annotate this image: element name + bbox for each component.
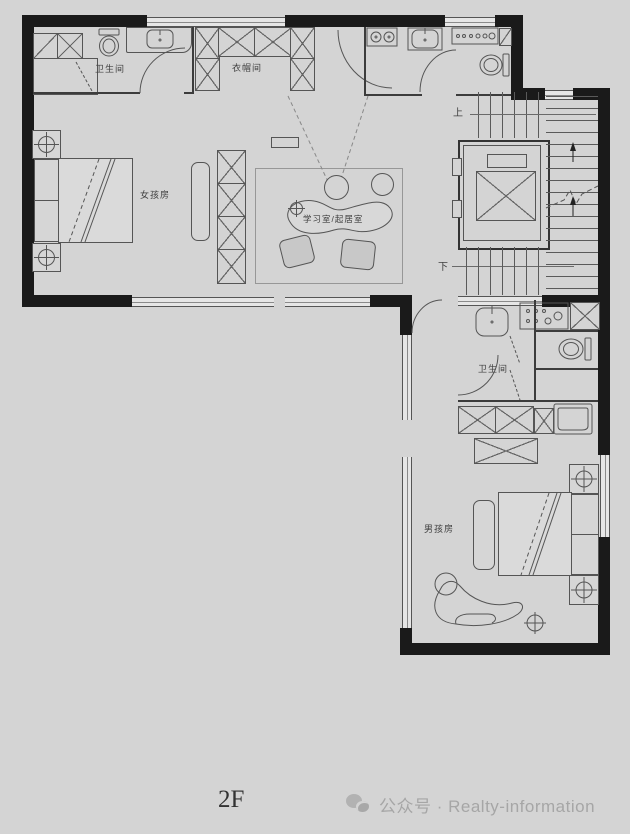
lamp-icon xyxy=(34,245,59,270)
bathroom2-divider-v xyxy=(534,300,536,400)
wall-top-a xyxy=(22,15,147,27)
lamp-icon xyxy=(34,132,59,157)
bookcase-cell xyxy=(217,216,246,251)
floor-plan: 卫生间 衣帽间 xyxy=(0,0,630,834)
wechat-icon xyxy=(346,794,372,816)
wardrobe-cabinet xyxy=(254,27,292,57)
window-bottom-left-1 xyxy=(132,297,274,307)
wardrobe-cabinet xyxy=(195,27,220,60)
wc-wall-bottom xyxy=(536,368,598,370)
credit-text: 公众号 · Realty-information xyxy=(379,792,595,817)
laundry-door-arc xyxy=(420,50,456,92)
headboard-panel xyxy=(34,159,60,201)
toilet-icon xyxy=(478,52,510,78)
bathroom1-cabinet xyxy=(33,33,58,59)
wall-wing-bottom xyxy=(400,643,610,655)
bathtub-icon xyxy=(554,404,592,434)
headboard-panel xyxy=(570,494,599,535)
stove-icon xyxy=(367,28,397,46)
bathroom1-cabinet-x xyxy=(57,33,83,59)
stairs-lower-treads xyxy=(466,247,540,295)
sink-icon xyxy=(408,28,442,50)
boys-room-label: 男孩房 xyxy=(424,522,454,535)
sink-icon xyxy=(146,29,174,49)
storage-cabinet xyxy=(474,438,538,464)
headboard-panel xyxy=(34,200,60,242)
window-wing-left-1 xyxy=(402,335,412,420)
wc-wall-top xyxy=(536,330,598,332)
bathroom2-label: 卫生间 xyxy=(478,362,508,375)
sink-icon xyxy=(472,306,512,338)
closet-label: 衣帽间 xyxy=(232,61,262,74)
window-top-2 xyxy=(445,17,495,27)
nightstand xyxy=(569,575,599,605)
blanket-lines xyxy=(59,159,132,242)
side-table-icon xyxy=(524,612,546,634)
wall-right-a xyxy=(598,88,610,455)
window-top-1 xyxy=(147,17,285,27)
wardrobe-cabinet xyxy=(290,58,315,91)
chaise-lounge xyxy=(426,572,534,634)
window-bottom-left-2 xyxy=(285,297,370,307)
bookcase-cell xyxy=(217,150,246,185)
floor-label: 2F xyxy=(218,786,244,814)
washer-panel-icon xyxy=(520,303,568,329)
bathroom1-wall-b xyxy=(184,92,194,94)
stairs-arrow-up-icon xyxy=(568,142,578,162)
elevator xyxy=(458,140,550,250)
wall-wing-left-a xyxy=(400,295,412,335)
laundry-wall-left xyxy=(364,27,366,95)
bathroom2-wall-bottom xyxy=(458,400,598,402)
girls-bed xyxy=(58,158,133,243)
girls-room-label: 女孩房 xyxy=(140,188,170,201)
window-right xyxy=(600,455,610,537)
toilet-icon xyxy=(98,28,120,58)
bookcase-cell xyxy=(217,183,246,218)
toilet-icon xyxy=(556,336,592,362)
bench xyxy=(191,162,210,241)
elevator-cab xyxy=(476,171,536,221)
shower xyxy=(33,58,98,95)
stairs-arrow-up-icon xyxy=(568,196,578,216)
wall-laundry-right xyxy=(511,15,523,100)
wall-bottom-left-a xyxy=(22,295,132,307)
vanity-cabinet xyxy=(534,408,554,434)
bench xyxy=(473,500,495,570)
stairs-up-label: 上 xyxy=(453,104,464,119)
blanket-lines xyxy=(499,493,571,575)
floor-plan-page: 卫生间 衣帽间 xyxy=(0,0,630,834)
elevator-counterweight xyxy=(487,154,527,168)
study-label: 学习室/起居室 xyxy=(303,213,363,225)
vanity-cabinet xyxy=(458,406,497,434)
control-panel-icon xyxy=(452,28,498,44)
bathroom1-label: 卫生间 xyxy=(95,62,125,75)
bathroom2-door-arc xyxy=(458,355,498,395)
chair xyxy=(340,238,377,270)
credit-line: 公众号 · Realty-information xyxy=(346,792,595,817)
bathroom1-door-arc xyxy=(140,48,185,93)
elevator-door-slot xyxy=(452,200,462,218)
bathroom1-wall-a xyxy=(33,92,140,94)
elevator-door-slot xyxy=(452,158,462,176)
shower-door-icon xyxy=(34,59,97,94)
headboard-panel xyxy=(570,534,599,575)
boys-bed xyxy=(498,492,572,576)
nightstand xyxy=(32,243,61,272)
stairs-down-label: 下 xyxy=(438,258,449,273)
stairs-upper-treads xyxy=(478,92,540,138)
wing-entry-door-arc xyxy=(412,300,442,333)
vanity-cabinet xyxy=(495,406,534,434)
bathroom2-cabinet xyxy=(570,302,600,330)
window-wing-left-2 xyxy=(402,457,412,628)
nightstand xyxy=(569,464,599,494)
wardrobe-cabinet xyxy=(195,58,220,91)
corner-cabinet xyxy=(499,28,512,46)
lamp-icon xyxy=(571,466,597,492)
lamp-icon xyxy=(571,577,597,603)
wardrobe-cabinet xyxy=(218,27,256,57)
wardrobe-cabinet xyxy=(290,27,315,60)
nightstand xyxy=(32,130,61,159)
wall-top-b xyxy=(285,15,445,27)
bookcase-cell xyxy=(217,249,246,284)
wall-right-b xyxy=(598,537,610,655)
folding-door-icon xyxy=(508,334,522,402)
bathroom1-divider xyxy=(192,27,194,93)
